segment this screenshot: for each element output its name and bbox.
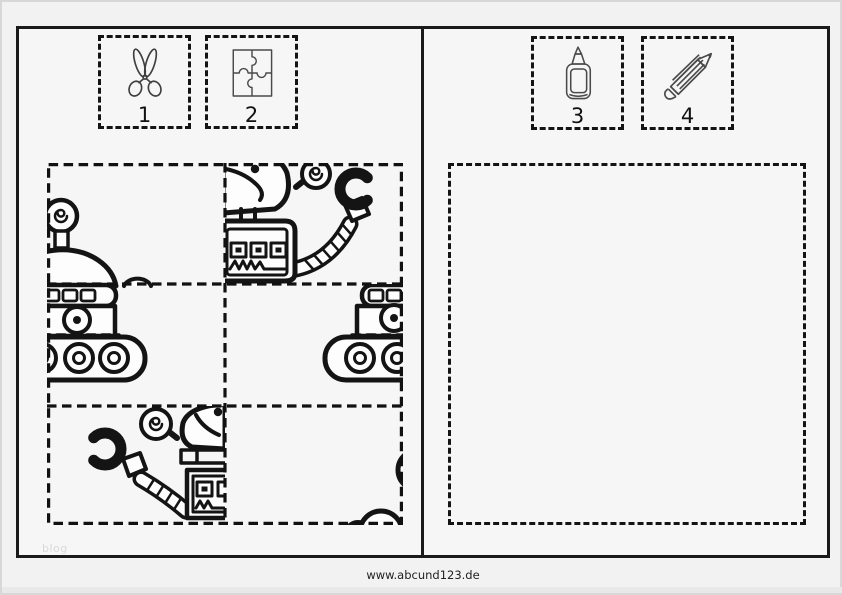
footer-url: www.abcund123.de bbox=[2, 568, 842, 582]
step-box-cut: 1 bbox=[98, 35, 191, 129]
piece-tank-robot-right-edge bbox=[325, 285, 403, 380]
glue-icon bbox=[534, 39, 621, 105]
puzzle-icon bbox=[208, 38, 295, 104]
step-number-4: 4 bbox=[681, 105, 694, 127]
piece-tank-robot-left bbox=[47, 200, 151, 380]
step-number-3: 3 bbox=[571, 105, 584, 127]
pencil-icon bbox=[644, 39, 731, 105]
piece-robot-head-right bbox=[217, 163, 369, 281]
step-box-puzzle: 2 bbox=[205, 35, 298, 129]
piece-tread-arcs bbox=[345, 450, 403, 525]
page-divider bbox=[421, 26, 424, 558]
paste-area bbox=[448, 163, 806, 525]
step-number-1: 1 bbox=[138, 104, 151, 126]
step-box-glue: 3 bbox=[531, 36, 624, 130]
watermark: blog bbox=[42, 542, 68, 555]
bottom-edge-strip bbox=[2, 587, 842, 593]
worksheet-canvas: 1 2 3 bbox=[0, 0, 842, 595]
step-box-pencil: 4 bbox=[641, 36, 734, 130]
scissors-icon bbox=[101, 38, 188, 104]
piece-robot-head-left bbox=[94, 404, 232, 518]
puzzle-pieces-grid bbox=[47, 163, 403, 525]
step-number-2: 2 bbox=[245, 104, 258, 126]
